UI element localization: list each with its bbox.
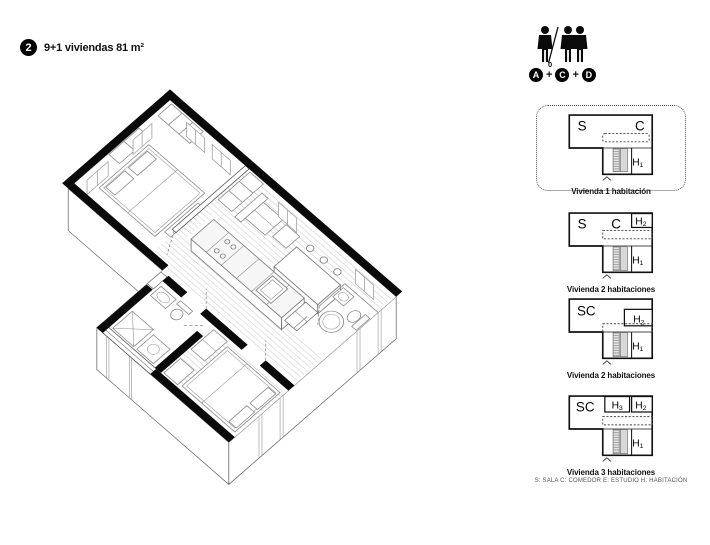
module-badge-d: D <box>582 68 596 82</box>
legend-item-4[interactable]: SC H3 H2 H1 Vivienda 3 habitaciones <box>536 388 686 477</box>
unit-diagram-4: SC H3 H2 H1 <box>567 395 655 463</box>
unit-number-badge: 2 <box>20 39 37 56</box>
legend-caption: Vivienda 1 habitación <box>537 187 685 196</box>
unit-title: 9+1 viviendas 81 m² <box>44 42 144 54</box>
unit-diagram-1: S C H1 <box>567 114 655 182</box>
legend-item-2[interactable]: S C H2 H1 Vivienda 2 habitaciones <box>536 205 686 294</box>
caret-pointer <box>603 361 611 365</box>
couple-icon <box>561 26 588 62</box>
caret-pointer <box>603 275 611 279</box>
room-label-sala: S <box>578 118 587 133</box>
core-shaft-strip <box>620 149 627 172</box>
module-badge-c: C <box>555 68 569 82</box>
core-stair-strip <box>613 149 619 172</box>
room-label-sala-comedor: SC <box>576 399 595 414</box>
room-label-sala-comedor: SC <box>577 304 596 319</box>
core-stair-strip <box>613 430 619 454</box>
abbreviation-footnote: S: SALA C: COMEDOR E: ESTUDIO H: HABITAC… <box>530 478 692 484</box>
occupancy-superscript: 0 <box>548 60 552 69</box>
plus-sign: + <box>572 69 578 81</box>
core-stair-strip <box>613 247 619 271</box>
module-badge-a: A <box>529 68 543 82</box>
room-label-comedor: C <box>611 216 621 231</box>
room-label-comedor: C <box>635 118 645 133</box>
core-shaft-strip <box>620 430 627 454</box>
legend-caption: Vivienda 3 habitaciones <box>536 468 686 477</box>
floor-plan-axonometric <box>35 60 465 530</box>
unit-diagram-3: SC H2 H1 <box>567 298 655 366</box>
core-stair-strip <box>613 333 619 357</box>
plus-sign: + <box>546 69 552 81</box>
occupancy-icons <box>527 22 607 70</box>
legend-caption: Vivienda 2 habitaciones <box>536 371 686 380</box>
core-shaft-strip <box>620 333 627 357</box>
legend-item-1[interactable]: S C H1 Vivienda 1 habitación <box>536 105 686 191</box>
module-badges: 0 A + C + D <box>529 68 596 82</box>
sheet-header: 2 9+1 viviendas 81 m² <box>20 39 144 56</box>
room-label-sala: S <box>578 216 587 231</box>
legend-item-3[interactable]: SC H2 H1 Vivienda 2 habitaciones <box>536 291 686 380</box>
caret-pointer <box>603 177 611 181</box>
core-shaft-strip <box>620 247 627 271</box>
unit-diagram-2: S C H2 H1 <box>567 212 655 280</box>
caret-pointer <box>603 458 611 462</box>
